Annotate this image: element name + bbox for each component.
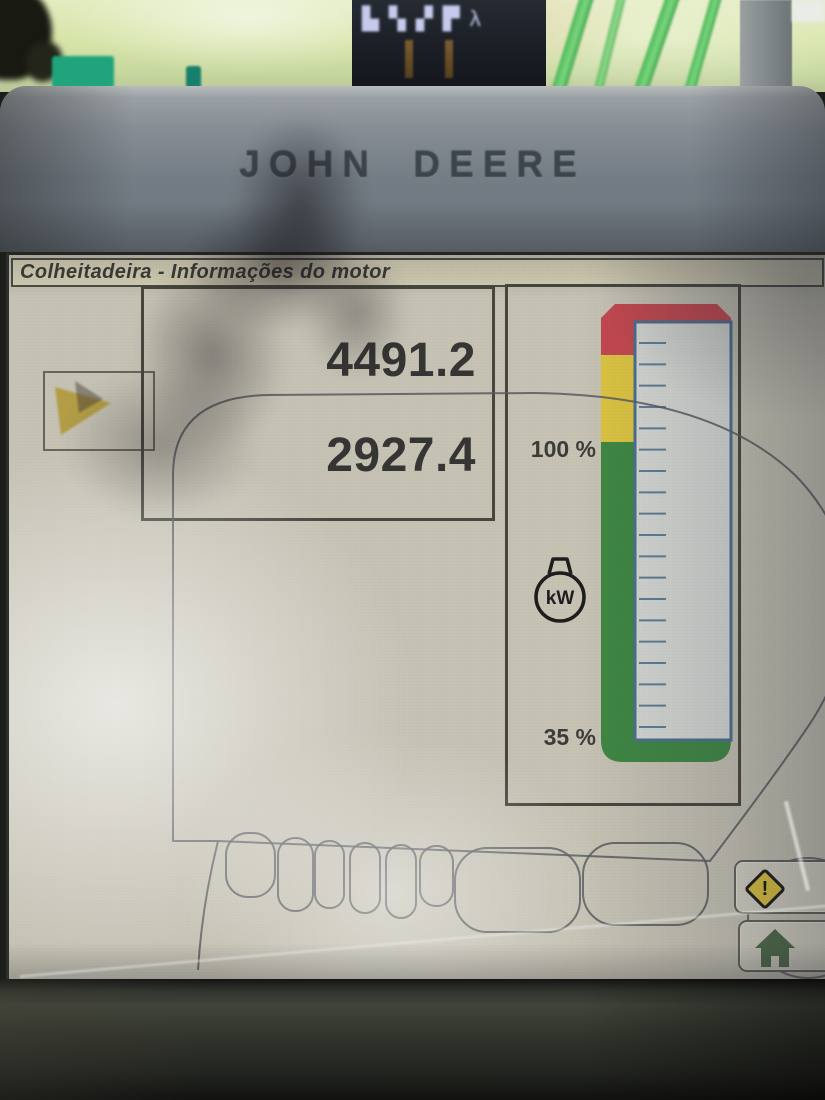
monitor-bezel: JOHN DEERE xyxy=(0,86,825,252)
display-glyph-3: λ xyxy=(470,6,491,31)
engine-value-top: 4491.2 xyxy=(326,335,476,387)
power-gauge-panel: 100 % 35 % kW xyxy=(505,284,741,806)
cab-pillar xyxy=(740,0,792,92)
bezel-bottom xyxy=(0,979,825,1100)
display-glyph-1: ▙▚ xyxy=(362,6,416,31)
gauge-needle-left xyxy=(405,40,413,78)
page-title: Colheitadeira - Informações do motor xyxy=(11,258,824,287)
gauge-needle-right xyxy=(445,40,453,78)
gauge-label-100: 100 % xyxy=(508,435,596,463)
cab-scene: ▙▚▞▛λ xyxy=(0,0,825,92)
corner-post-display: ▙▚▞▛λ xyxy=(352,0,546,92)
engine-value-bottom: 2927.4 xyxy=(326,430,476,482)
display-screen: Colheitadeira - Informações do motor 449… xyxy=(6,252,825,979)
exclamation-glyph: ! xyxy=(753,877,777,901)
green-railing xyxy=(546,0,742,92)
cab-photo: ▙▚▞▛λ JOHN DEERE Colheitadeira - Informa… xyxy=(0,0,825,1100)
corner-display-glyphs: ▙▚▞▛λ xyxy=(362,6,542,32)
teal-sign xyxy=(52,56,114,88)
home-icon xyxy=(752,927,798,969)
john-deere-logo: JOHN DEERE xyxy=(0,144,825,186)
kw-power-icon: kW xyxy=(532,553,588,625)
display-glyph-2: ▞▛ xyxy=(416,6,470,31)
kw-label: kW xyxy=(546,588,575,609)
warning-diamond-icon: ! xyxy=(744,868,786,910)
gauge-label-35: 35 % xyxy=(508,723,596,751)
engine-icon-box xyxy=(43,371,155,451)
home-button[interactable] xyxy=(738,920,825,972)
warning-button[interactable]: ! xyxy=(734,860,825,914)
engine-pictogram xyxy=(45,373,153,449)
sky-patch xyxy=(792,0,825,22)
engine-readout-panel: 4491.2 2927.4 xyxy=(141,286,495,521)
